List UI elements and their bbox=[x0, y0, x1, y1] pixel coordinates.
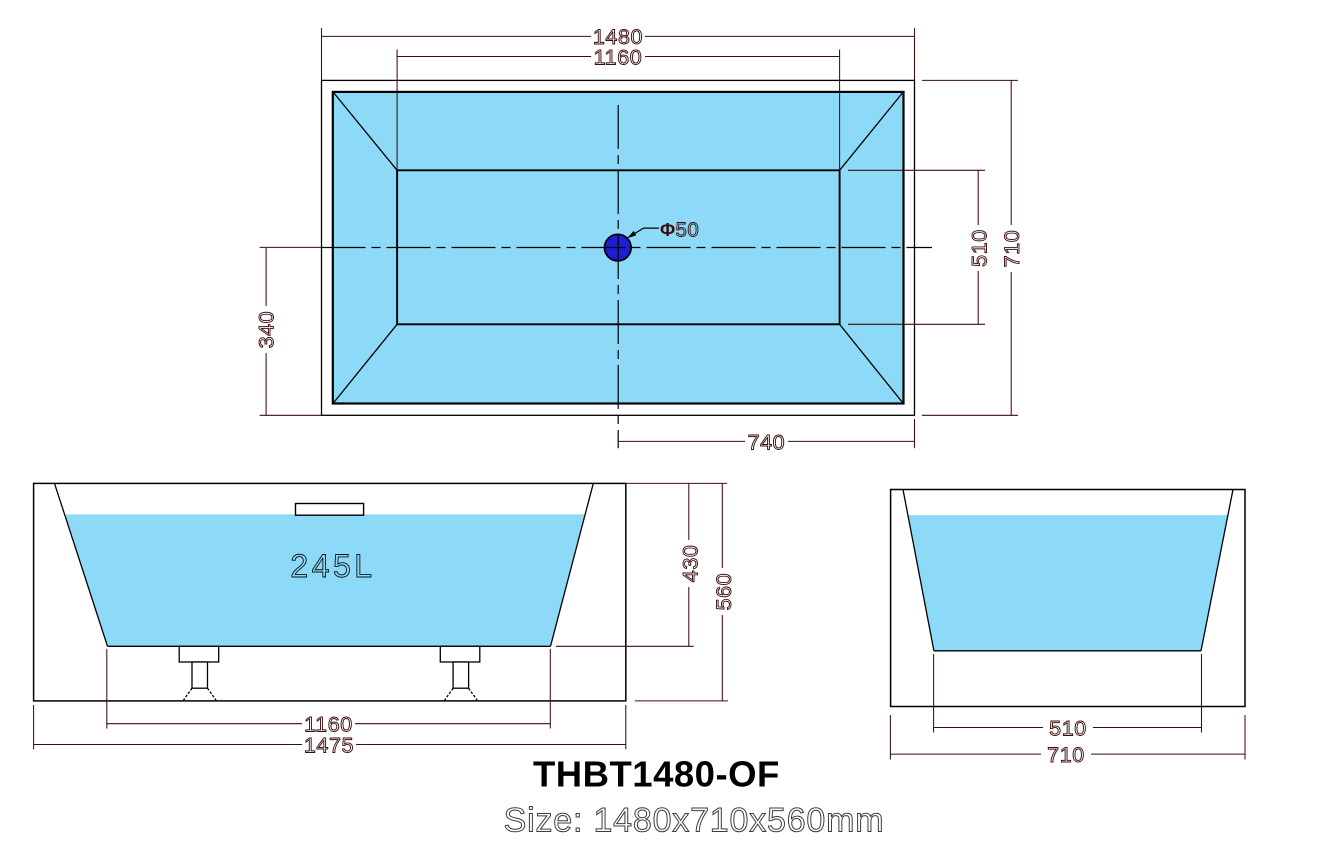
svg-text:Size: 1480x710x560mm: Size: 1480x710x560mm bbox=[504, 802, 885, 840]
svg-text:710: 710 bbox=[1047, 743, 1085, 767]
svg-text:560: 560 bbox=[712, 573, 736, 611]
svg-text:245L: 245L bbox=[290, 548, 375, 584]
svg-text:1475: 1475 bbox=[304, 733, 354, 757]
svg-text:710: 710 bbox=[1000, 230, 1024, 268]
svg-text:430: 430 bbox=[678, 545, 702, 583]
svg-text:Φ: Φ bbox=[660, 219, 675, 240]
svg-text:510: 510 bbox=[967, 229, 991, 267]
svg-text:740: 740 bbox=[748, 431, 786, 455]
svg-text:510: 510 bbox=[1049, 716, 1087, 740]
svg-text:1160: 1160 bbox=[594, 45, 643, 69]
svg-text:340: 340 bbox=[255, 311, 279, 349]
svg-text:THBT1480-OF: THBT1480-OF bbox=[533, 754, 780, 795]
svg-text:50: 50 bbox=[676, 218, 700, 241]
